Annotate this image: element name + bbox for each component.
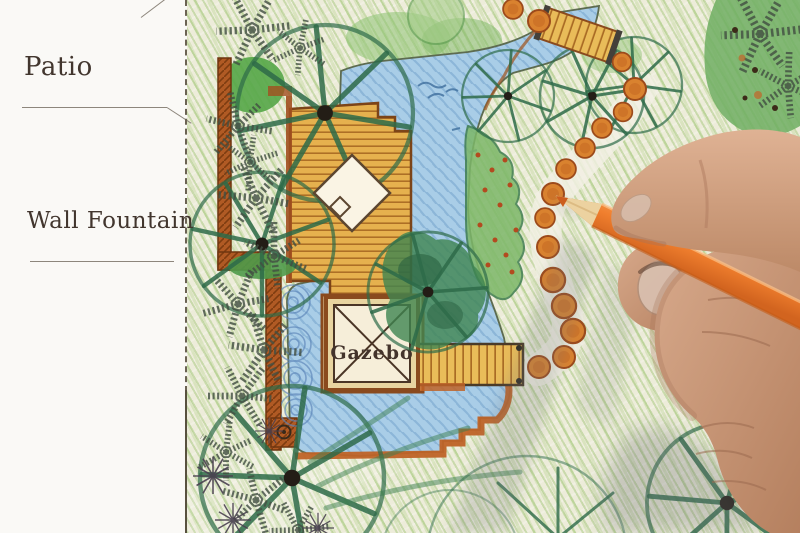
patio-label: Patio <box>24 52 93 82</box>
wall-fountain-leader-line <box>30 261 174 262</box>
deck-left-border <box>286 96 292 283</box>
patio-leader-line <box>22 107 167 108</box>
property-boundary-dashed <box>185 0 187 392</box>
property-boundary-solid <box>185 390 187 533</box>
wall-fountain-label: Wall Fountain <box>27 208 194 234</box>
walkway <box>411 344 523 385</box>
top-corner-leader-line <box>141 0 166 18</box>
paper-margin: Patio Wall Fountain <box>0 0 187 533</box>
shrub-top-right-corner <box>704 0 800 137</box>
landscape-plan-photo: Gazebo <box>0 0 800 533</box>
